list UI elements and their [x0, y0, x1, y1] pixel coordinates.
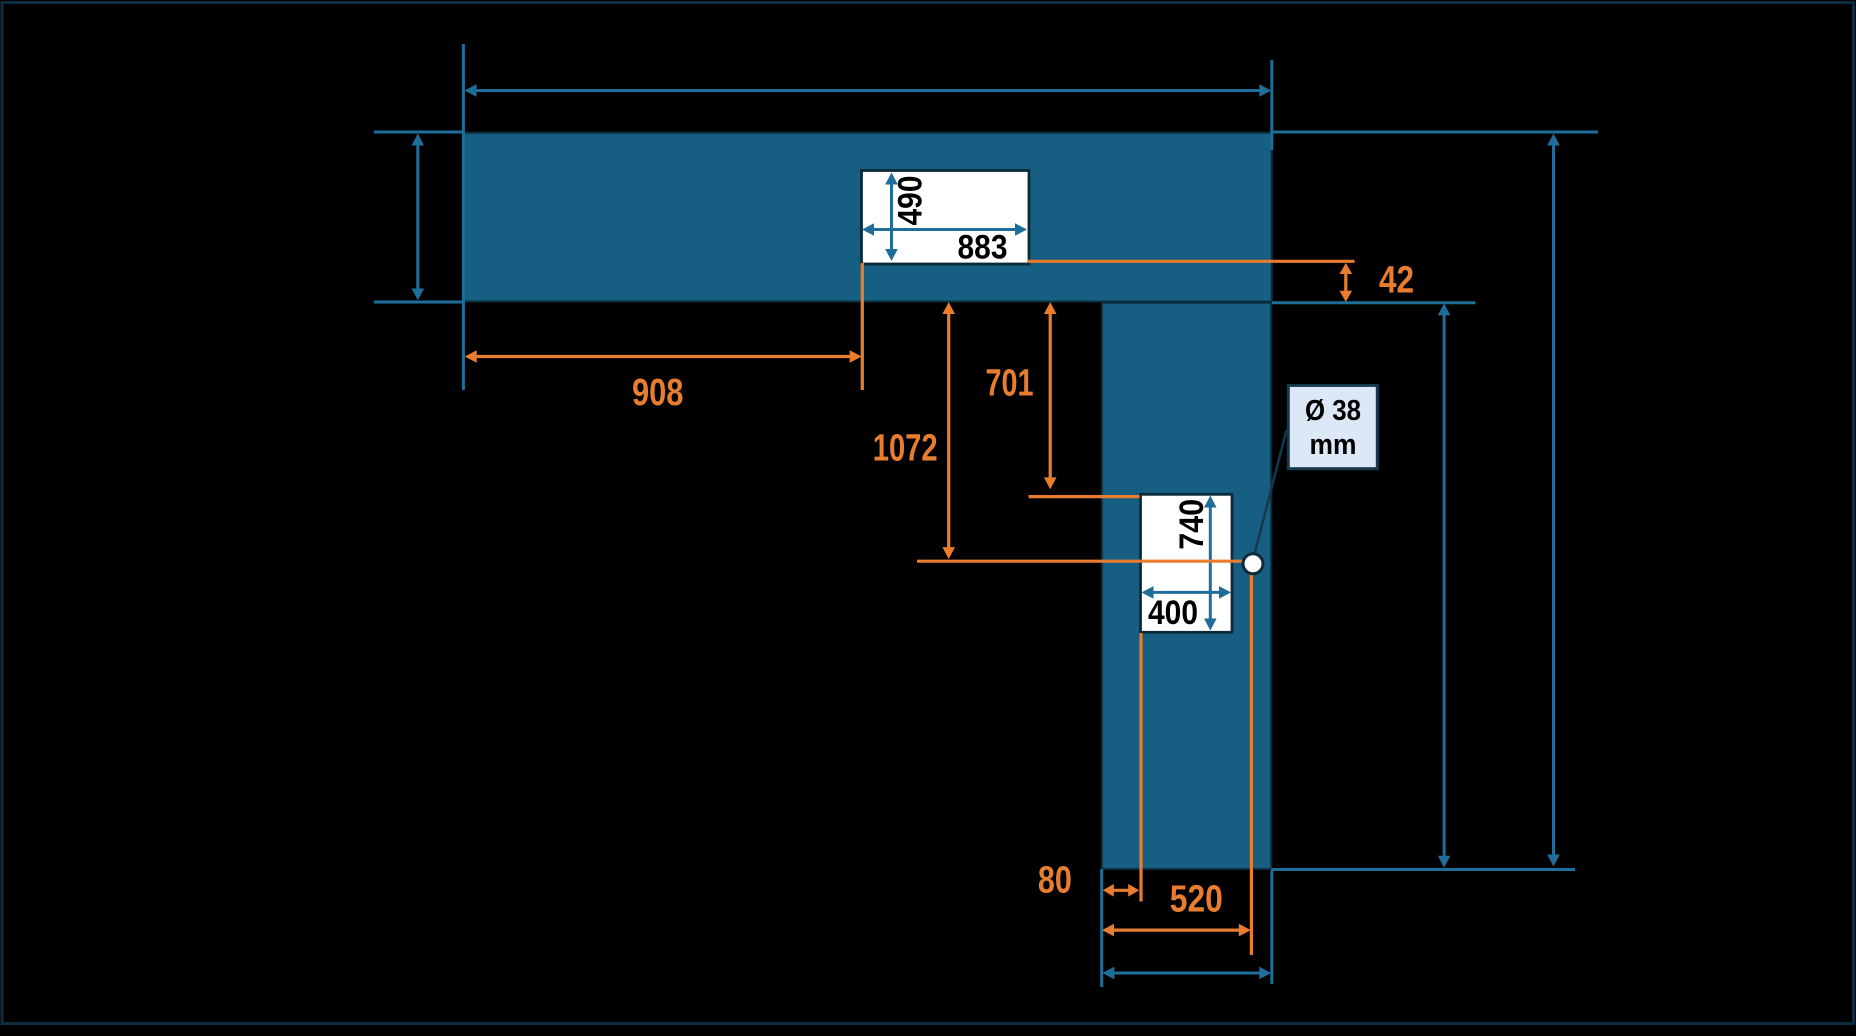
svg-text:1072: 1072: [873, 428, 938, 470]
svg-text:80: 80: [1038, 860, 1072, 902]
svg-text:520: 520: [1170, 879, 1223, 921]
svg-text:42: 42: [1379, 260, 1414, 302]
svg-text:701: 701: [986, 362, 1034, 404]
svg-text:mm: mm: [1310, 429, 1357, 461]
svg-text:400: 400: [1148, 594, 1198, 632]
svg-text:490: 490: [891, 176, 929, 226]
svg-text:883: 883: [958, 229, 1008, 267]
svg-text:740: 740: [1173, 499, 1211, 550]
svg-text:Ø 38: Ø 38: [1305, 395, 1361, 427]
svg-text:908: 908: [632, 372, 684, 414]
